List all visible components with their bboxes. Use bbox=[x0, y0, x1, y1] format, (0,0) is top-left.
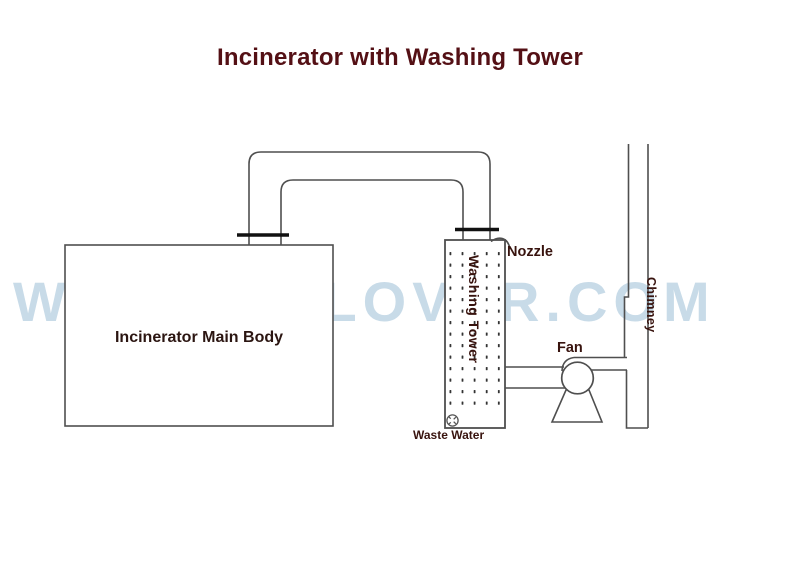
waste-water-label: Waste Water bbox=[413, 428, 484, 442]
nozzle-label: Nozzle bbox=[507, 244, 553, 260]
fan-impeller-circle bbox=[562, 362, 594, 394]
diagram-page: Incinerator with Washing Tower WWW.HICLO… bbox=[0, 0, 800, 564]
chimney-label: Chimney bbox=[644, 277, 658, 337]
flue-pipe bbox=[249, 152, 490, 245]
tower-to-fan-duct bbox=[505, 367, 566, 388]
waste-water-drain-icon bbox=[447, 415, 458, 426]
incinerator-label: Incinerator Main Body bbox=[65, 329, 333, 347]
fan-base bbox=[552, 390, 602, 422]
diagram-canvas bbox=[0, 0, 800, 564]
washing-tower-label: Washing Tower bbox=[466, 255, 482, 375]
fan-label: Fan bbox=[557, 340, 583, 356]
